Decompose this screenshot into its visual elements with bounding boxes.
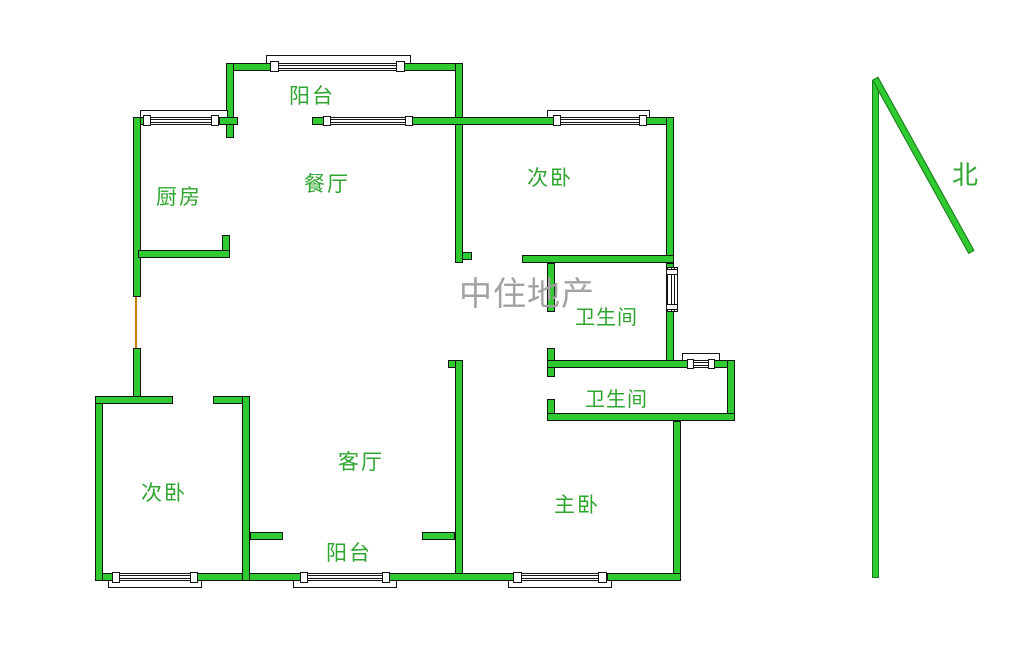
window-end-block — [270, 61, 279, 72]
room-label-bedroom-bottom-left: 次卧 — [141, 483, 187, 504]
window-end-block — [405, 116, 413, 126]
wall-living-right — [455, 360, 463, 581]
window-end-block — [639, 115, 647, 126]
wall-bedroom-bl-left — [95, 396, 103, 581]
wall-kitchen-door-stub — [222, 235, 230, 251]
window-end-block — [666, 304, 678, 310]
window-end-block — [553, 115, 561, 126]
window-end-block — [396, 61, 405, 72]
window-master — [513, 573, 608, 581]
window-bedroom-tr — [553, 117, 647, 125]
north-label: 北 — [952, 163, 978, 189]
room-label-bathroom-lower: 卫生间 — [585, 390, 648, 410]
room-label-balcony-bottom: 阳台 — [326, 543, 372, 564]
window-end-block — [513, 572, 522, 583]
wall-left-exterior-lower — [133, 348, 141, 400]
wall-dining-right — [455, 63, 463, 263]
window-end-block — [300, 572, 308, 583]
window-balcony-top — [270, 63, 405, 71]
wall-kitchen-bottom — [138, 250, 230, 258]
window-end-block — [687, 359, 694, 369]
entry-door-line — [135, 297, 137, 348]
window-kitchen — [143, 117, 220, 125]
room-label-balcony-top: 阳台 — [289, 86, 335, 107]
room-label-dining: 餐厅 — [304, 174, 350, 195]
floor-plan-canvas: 阳台 厨房 餐厅 次卧 卫生间 卫生间 次卧 客厅 阳台 主卧 北 中住地产 — [0, 0, 1036, 647]
window-end-block — [323, 116, 331, 126]
room-label-bedroom-top-right: 次卧 — [527, 168, 573, 189]
window-sill-bedroom-bl — [108, 580, 202, 588]
window-sill-master — [508, 580, 612, 588]
room-label-living: 客厅 — [338, 452, 384, 473]
wall-dining-right-foot — [462, 252, 472, 260]
window-end-block — [190, 572, 198, 583]
wall-bath2-bottom — [547, 413, 735, 421]
window-bedroom-bl — [112, 573, 198, 581]
watermark-text: 中住地产 — [459, 279, 595, 312]
window-end-block — [708, 359, 715, 369]
window-end-block — [598, 572, 607, 583]
wall-bedroom-tr-bottom — [522, 255, 674, 263]
wall-master-right — [673, 421, 681, 581]
window-balcony-inner — [323, 117, 413, 125]
window-end-block — [211, 115, 219, 126]
wall-bedroom-bl-top-left — [95, 396, 173, 404]
window-end-block — [382, 572, 390, 583]
wall-balcony2-stub-right — [422, 532, 455, 540]
wall-left-exterior-upper — [133, 117, 141, 297]
wall-balcony2-stub-left — [250, 532, 283, 540]
window-balcony-bottom — [300, 573, 390, 581]
room-label-kitchen: 厨房 — [156, 187, 202, 208]
wall-bedroom-bl-right — [242, 396, 250, 581]
wall-balcony-left — [226, 63, 234, 138]
window-end-block — [143, 115, 151, 126]
wall-bath2-right — [727, 360, 735, 421]
wall-bedroom-tr-right — [666, 117, 674, 263]
room-label-master-bedroom: 主卧 — [554, 495, 600, 516]
window-end-block — [112, 572, 120, 583]
window-end-block — [666, 269, 678, 275]
north-arrow-vertical-line — [872, 80, 879, 578]
